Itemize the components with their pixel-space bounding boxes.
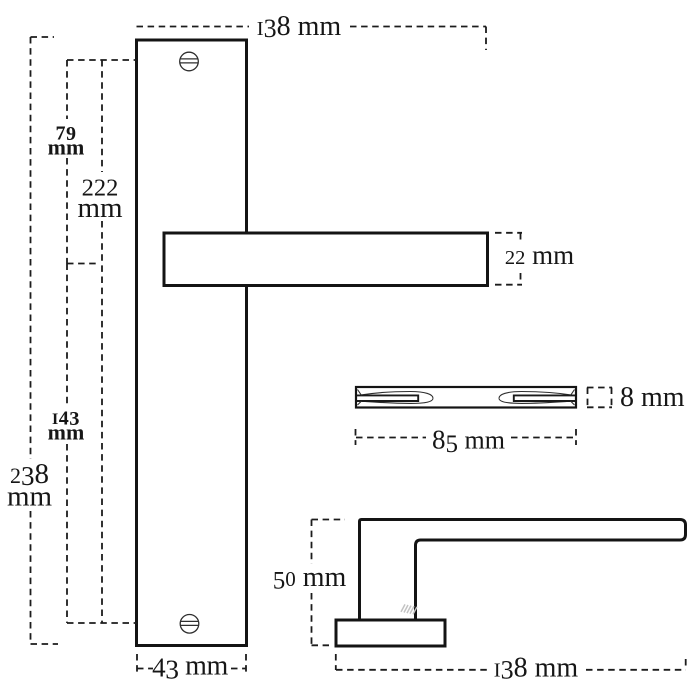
svg-text:I38 mm: I38 mm xyxy=(257,11,342,43)
svg-text:43 mm: 43 mm xyxy=(152,650,228,684)
svg-text:mm: mm xyxy=(7,480,53,512)
svg-text:I38 mm: I38 mm xyxy=(494,653,579,685)
svg-text:8 mm: 8 mm xyxy=(620,382,685,413)
svg-text:85 mm: 85 mm xyxy=(432,425,505,459)
svg-text:50 mm: 50 mm xyxy=(273,562,347,595)
svg-text:mm: mm xyxy=(77,192,123,224)
svg-text:mm: mm xyxy=(48,419,85,444)
svg-text:mm: mm xyxy=(48,135,85,160)
